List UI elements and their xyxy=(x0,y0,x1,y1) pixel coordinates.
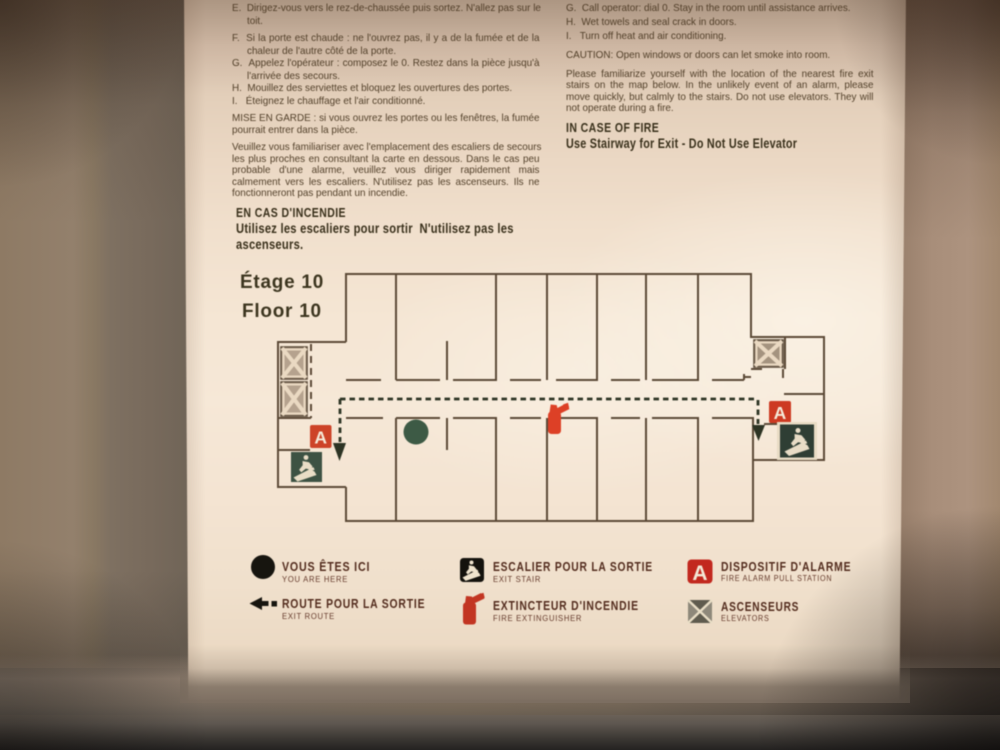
svg-text:A: A xyxy=(774,403,787,423)
svg-text:A: A xyxy=(692,562,707,585)
svg-text:A: A xyxy=(314,428,327,448)
